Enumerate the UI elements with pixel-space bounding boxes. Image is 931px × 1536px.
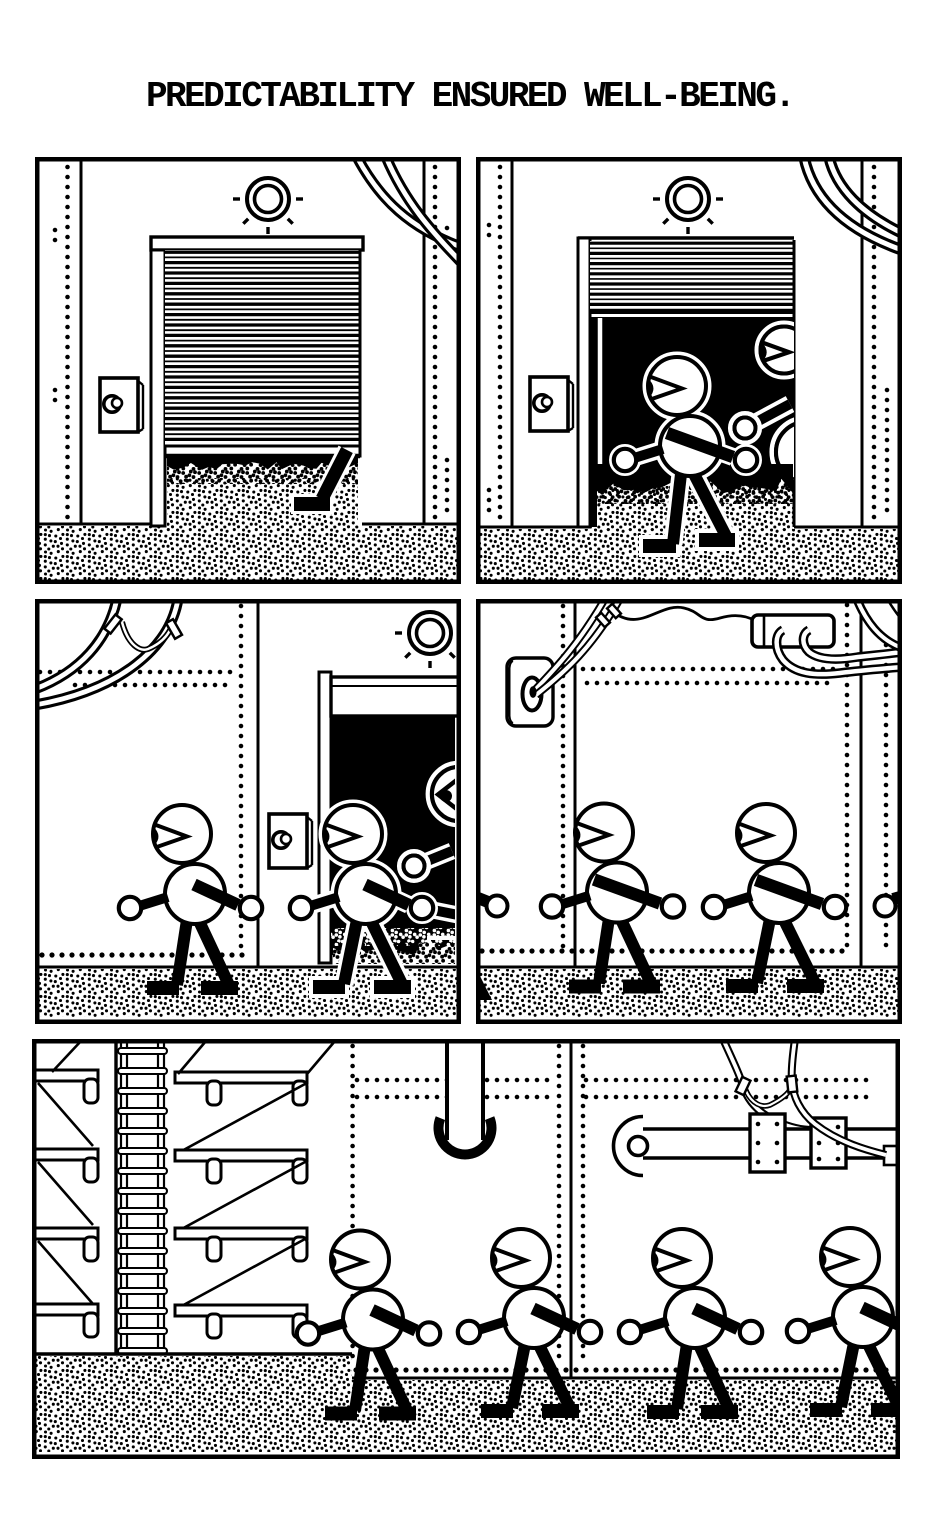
svg-text:PREDICTABILITY ENSURED WELL-BE: PREDICTABILITY ENSURED WELL-BEING. bbox=[146, 76, 796, 117]
